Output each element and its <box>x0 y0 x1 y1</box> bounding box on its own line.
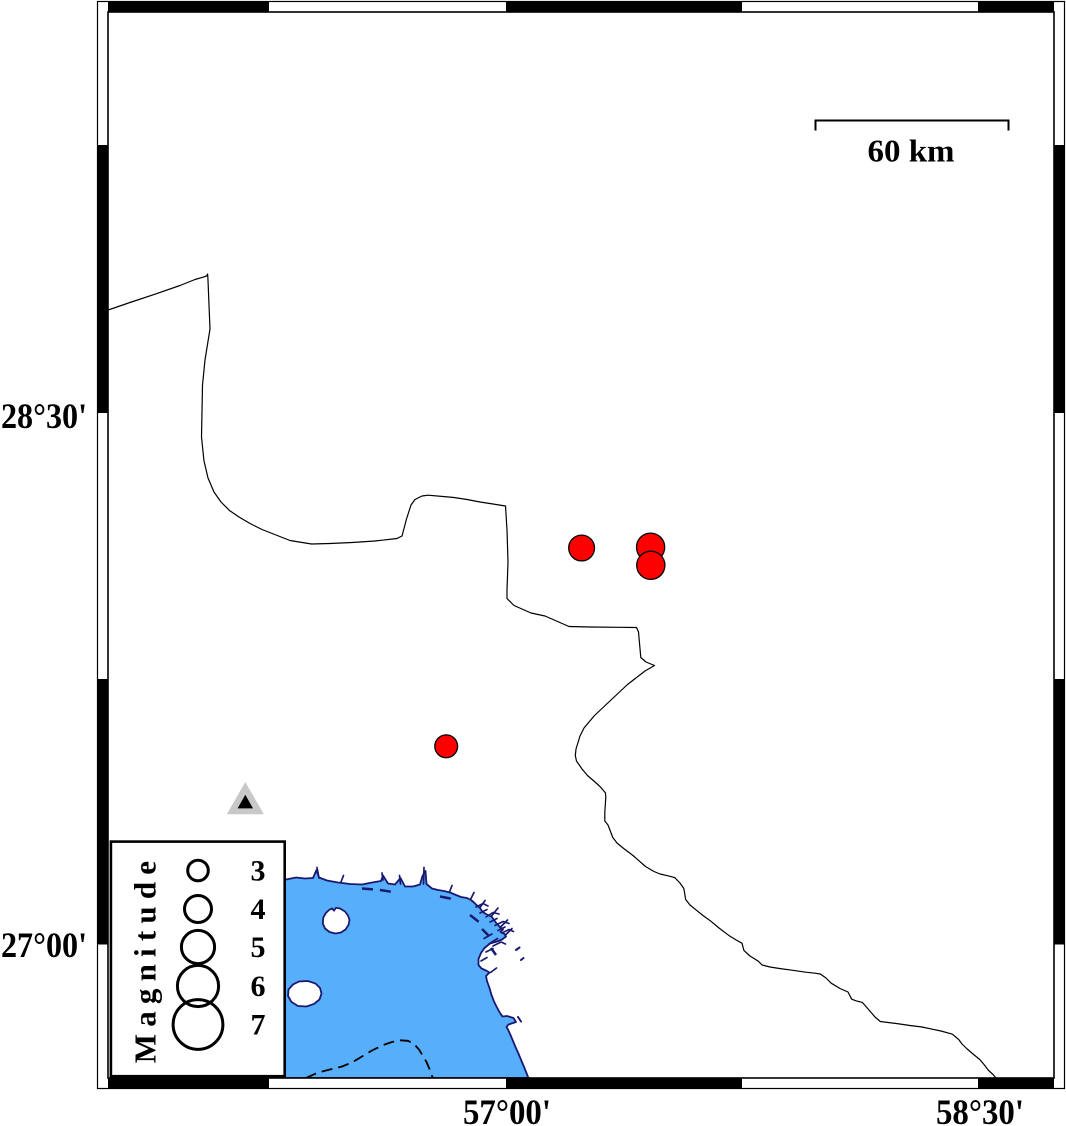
svg-text:58°30': 58°30' <box>936 1092 1024 1126</box>
svg-text:7: 7 <box>251 1009 266 1042</box>
svg-text:60 km: 60 km <box>868 133 955 169</box>
svg-text:57°00': 57°00' <box>463 1092 551 1126</box>
svg-text:4: 4 <box>251 893 266 926</box>
svg-text:5: 5 <box>251 931 266 964</box>
svg-text:6: 6 <box>251 970 266 1003</box>
svg-text:3: 3 <box>251 855 266 888</box>
svg-text:Magnitude: Magnitude <box>128 854 163 1063</box>
svg-text:27°00': 27°00' <box>1 925 87 965</box>
svg-text:28°30': 28°30' <box>1 396 87 436</box>
